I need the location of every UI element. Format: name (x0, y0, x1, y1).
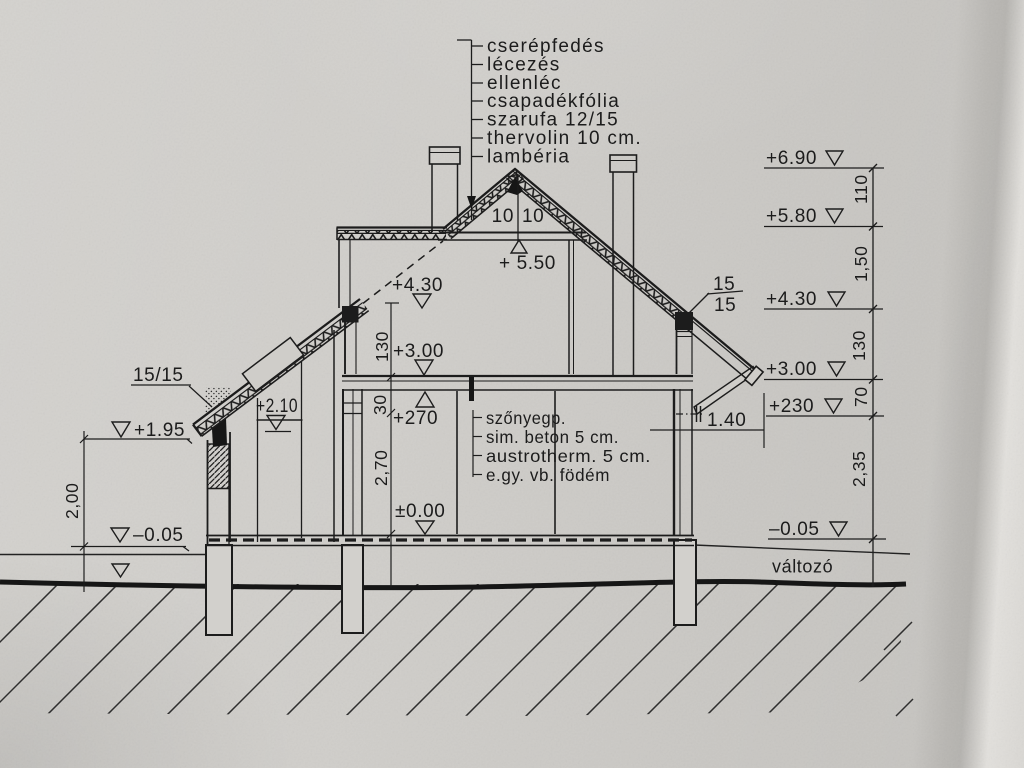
svg-text:+5.80: +5.80 (766, 206, 817, 227)
svg-text:+1.95: +1.95 (134, 420, 185, 441)
svg-text:+4.30: +4.30 (392, 275, 443, 296)
svg-text:+3.00: +3.00 (766, 359, 817, 380)
svg-text:15/15: 15/15 (133, 365, 184, 386)
svg-text:130: 130 (849, 330, 869, 361)
svg-text:2,70: 2,70 (371, 450, 391, 486)
svg-text:110: 110 (851, 174, 871, 204)
svg-text:10: 10 (492, 206, 514, 227)
svg-text:2,00: 2,00 (62, 483, 82, 519)
svg-text:70: 70 (851, 386, 871, 407)
svg-text:30: 30 (370, 394, 390, 415)
svg-text:10: 10 (522, 206, 544, 227)
svg-text:+ 5.50: + 5.50 (499, 253, 556, 274)
svg-text:+230: +230 (769, 396, 814, 417)
svg-text:15: 15 (713, 274, 735, 295)
svg-text:±0.00: ±0.00 (395, 501, 445, 522)
svg-text:változó: változó (772, 557, 833, 577)
svg-text:austrotherm. 5 cm.: austrotherm. 5 cm. (486, 446, 651, 466)
svg-text:e.gy. vb. födém: e.gy. vb. födém (486, 465, 610, 485)
svg-text:+6.90: +6.90 (766, 148, 817, 169)
svg-text:sim. beton 5 cm.: sim. beton 5 cm. (486, 427, 619, 447)
svg-text:szőnyegp.: szőnyegp. (486, 408, 566, 428)
svg-text:130: 130 (372, 331, 392, 362)
svg-text:+2.10: +2.10 (256, 396, 298, 417)
svg-text:1,50: 1,50 (851, 246, 871, 282)
svg-text:–0.05: –0.05 (769, 519, 820, 540)
svg-text:+4.30: +4.30 (766, 289, 817, 310)
svg-text:15: 15 (714, 295, 736, 316)
svg-text:2,35: 2,35 (849, 451, 869, 487)
svg-text:1.40: 1.40 (707, 410, 746, 431)
svg-text:+270: +270 (393, 408, 438, 429)
svg-text:lambéria: lambéria (487, 147, 570, 168)
svg-text:+3.00: +3.00 (393, 341, 444, 362)
svg-text:–0.05: –0.05 (133, 525, 184, 546)
